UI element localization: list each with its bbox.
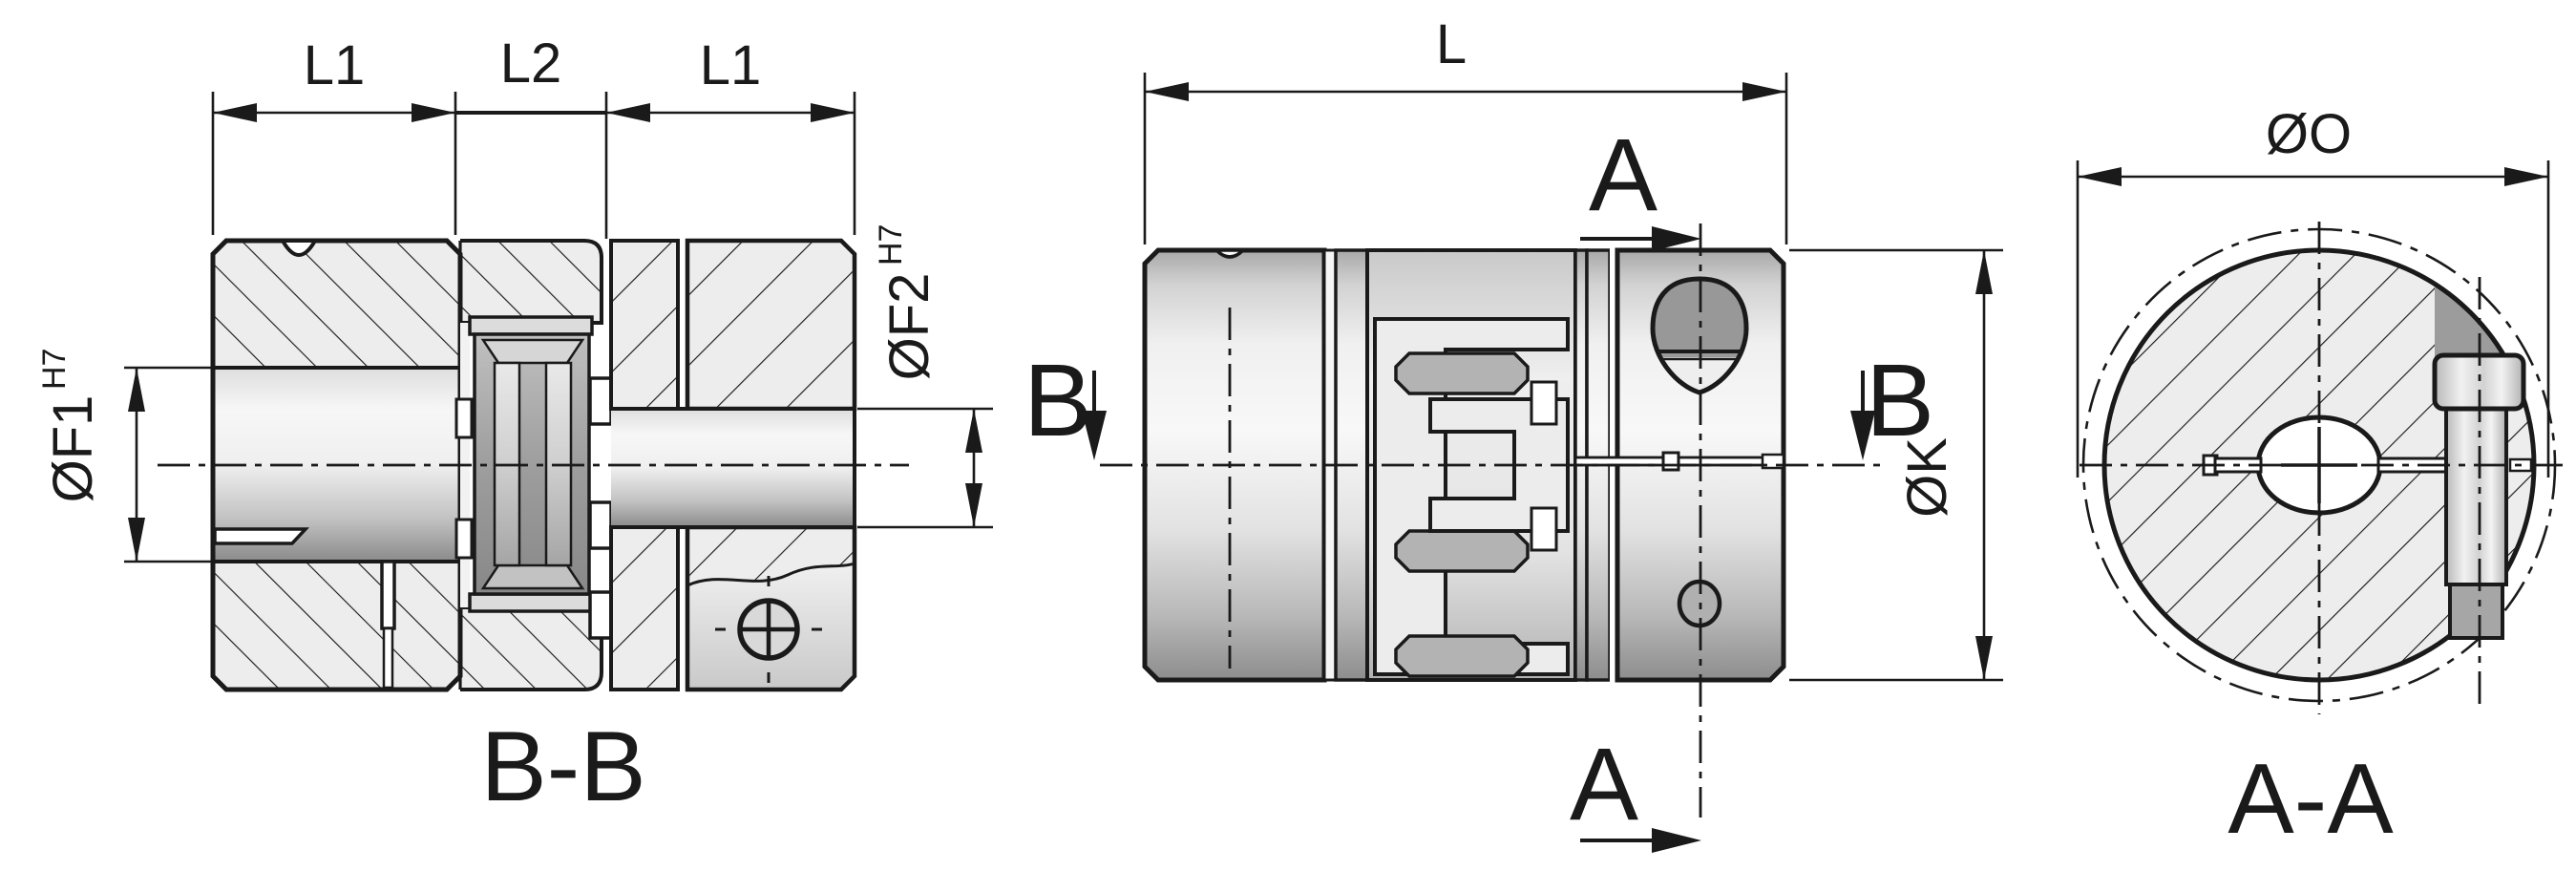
spider-cushion-1	[1396, 353, 1528, 393]
clamp-slit-narrow	[384, 628, 392, 688]
coupling-technical-drawing: L1 L2 L1 ØF1 H7 ØF2 H7 B-B	[0, 0, 2576, 892]
dim-label-f2-tol: H7	[873, 224, 909, 265]
dim-l	[1145, 73, 1786, 244]
spider-ibeam-bottom	[483, 565, 582, 588]
jaw-tab-left-1	[456, 399, 472, 437]
arrow-l-left	[1145, 82, 1189, 101]
arrow-k-bottom	[1975, 636, 1993, 680]
section-a-bottom-arrow	[1652, 828, 1701, 853]
arrow-l1b-left	[606, 103, 650, 122]
spider-cushion-3	[1396, 636, 1528, 676]
dim-label-f1: ØF1	[42, 395, 104, 503]
section-label-a-bottom: A	[1570, 726, 1638, 841]
spider-ibeam-top	[483, 340, 582, 363]
spider-cushion-2	[1396, 531, 1528, 571]
caption-bb: B-B	[480, 711, 645, 822]
dim-label-k: ØK	[1896, 437, 1958, 518]
section-a-top-arrow	[1652, 226, 1701, 251]
aa-screw-shaft	[2446, 409, 2506, 584]
aa-screw-thread-end	[2450, 584, 2502, 638]
arrow-o-left	[2078, 167, 2122, 186]
screw-pocket-dark	[2435, 284, 2505, 357]
dim-label-f1-group: ØF1 H7	[36, 349, 104, 503]
jaw-tab-right-2	[590, 502, 611, 548]
arrow-k-top	[1975, 250, 1993, 294]
clamp-slit-wide	[382, 562, 394, 628]
arrow-l1a-left	[213, 103, 257, 122]
arrow-f1-top	[128, 368, 145, 412]
keyway-slit	[215, 529, 306, 543]
side-jaw-tab-2	[1531, 508, 1556, 550]
dim-label-l1-left: L1	[304, 34, 366, 96]
side-jaw-tab-1	[1531, 382, 1556, 424]
dim-label-o: ØO	[2266, 103, 2352, 165]
side-slit-notch	[1663, 453, 1679, 470]
arrow-l1a-right	[412, 103, 455, 122]
section-label-b-left: B	[1024, 342, 1092, 457]
bore-f2	[611, 409, 855, 527]
dim-label-l: L	[1436, 13, 1467, 75]
jaw-tab-left-2	[456, 520, 472, 558]
arrow-f1-bottom	[128, 518, 145, 562]
view-section-aa: ØO A-A	[2078, 103, 2566, 855]
hub1-sleeve-top-hatch	[460, 241, 602, 323]
spider-cap-top	[470, 317, 592, 334]
arrow-o-right	[2504, 167, 2548, 186]
caption-aa: A-A	[2228, 744, 2394, 855]
jaw-tab-right-1	[590, 378, 611, 424]
dim-label-l1-right: L1	[700, 34, 762, 96]
view-side: L A A B B ØK	[1024, 13, 2003, 853]
section-label-a-top: A	[1589, 117, 1658, 232]
dim-label-f2-group: ØF2 H7	[873, 224, 940, 381]
hub1-sleeve-bottom-hatch	[460, 607, 602, 690]
dim-label-k-group: ØK	[1896, 437, 1958, 518]
spider-cap-bottom	[470, 594, 592, 611]
arrow-f2-top	[965, 409, 982, 453]
jaw-tab-right-3	[590, 592, 611, 638]
dim-label-f1-tol: H7	[36, 349, 73, 390]
arrow-l-right	[1742, 82, 1786, 101]
dim-label-f2: ØF2	[878, 273, 940, 381]
dim-label-l2: L2	[500, 32, 562, 95]
dim-chain-top	[213, 92, 855, 239]
arrow-f2-bottom	[965, 483, 982, 527]
view-section-bb: L1 L2 L1 ØF1 H7 ØF2 H7 B-B	[36, 32, 993, 822]
arrow-l1b-right	[811, 103, 855, 122]
